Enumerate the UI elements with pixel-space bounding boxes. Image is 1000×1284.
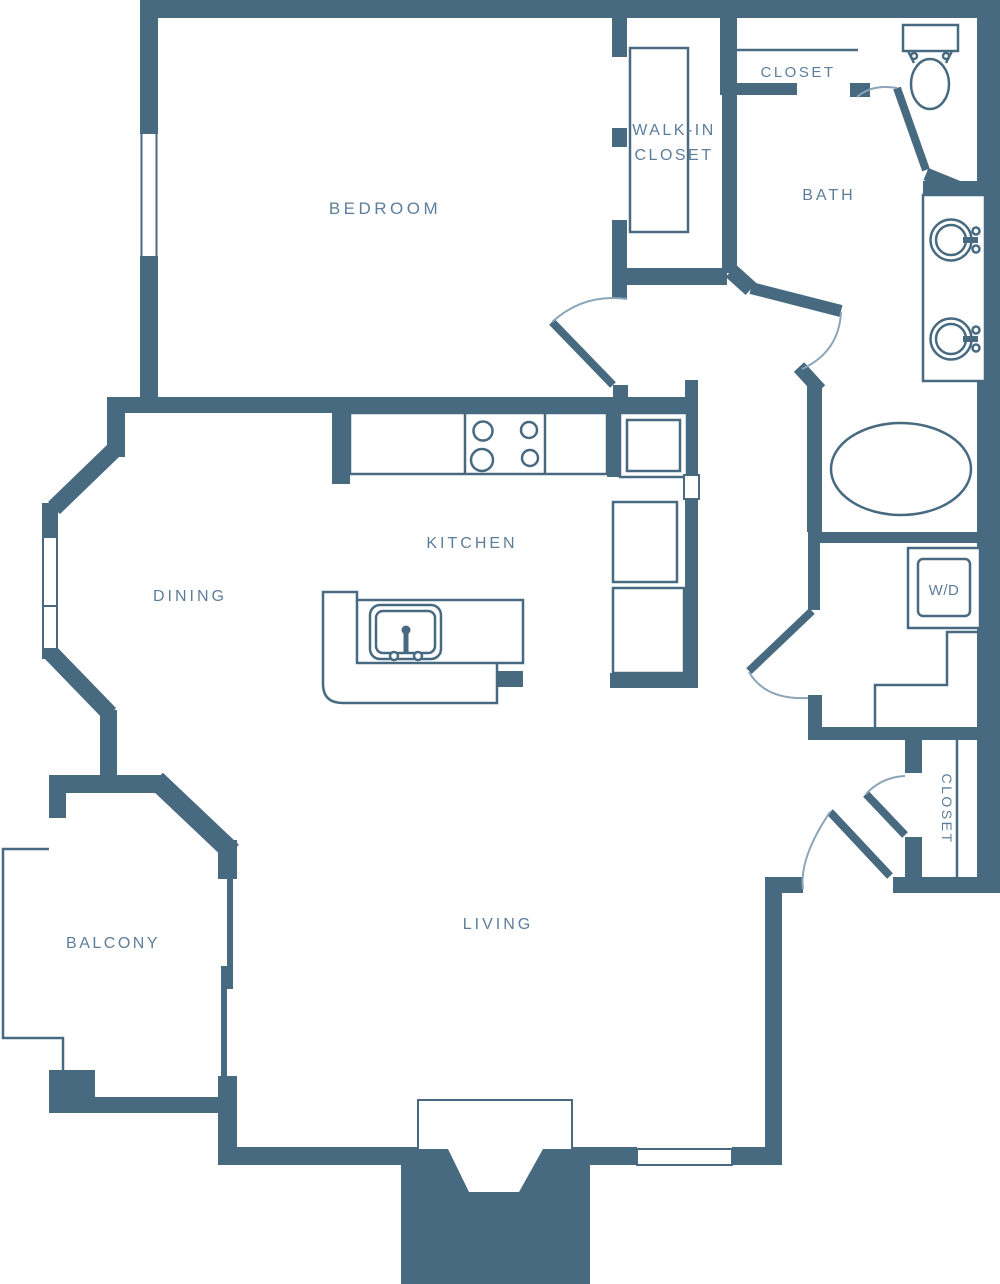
floor-plan: BEDROOM WALK-IN CLOSET CLOSET BATH KITCH… <box>0 0 1000 1284</box>
bedroom-south-wall <box>107 397 698 413</box>
bedroom-window <box>142 133 157 257</box>
wic-west-wall-a <box>612 18 627 57</box>
kitchen-bottom-wall <box>610 673 698 688</box>
toilet-bowl-icon <box>911 59 949 109</box>
entry-niche <box>418 1100 572 1150</box>
tubroom-west-wall <box>807 383 822 532</box>
wic-shelf <box>630 48 688 232</box>
kitchen-island-end-block <box>497 671 523 687</box>
living-top-wall-right <box>893 877 1000 893</box>
sliding-door-panel-1 <box>227 877 233 989</box>
hall-closet-door-leaf <box>866 794 905 835</box>
balcony-bottom-wall <box>95 1097 218 1113</box>
bath-fixtures <box>831 25 985 515</box>
floor-plan-svg: BEDROOM WALK-IN CLOSET CLOSET BATH KITCH… <box>0 0 1000 1284</box>
laundry-door-stub <box>808 695 822 731</box>
living-east-wall <box>765 877 782 1165</box>
walk-in-closet-label-line1: WALK-IN <box>632 122 716 139</box>
balcony-label: BALCONY <box>66 935 160 952</box>
walk-in-closet-label-line2: CLOSET <box>634 147 713 164</box>
hall-closet-stub-top <box>905 737 922 773</box>
dining-bay-wall-4 <box>100 710 117 777</box>
top-closet-label: CLOSET <box>760 64 835 81</box>
bath-label: BATH <box>802 187 855 204</box>
bedroom-door-arc <box>552 298 627 322</box>
dining-window <box>43 537 57 649</box>
living-door-arc <box>803 812 830 889</box>
kitchen-east-wall-notch <box>684 475 699 499</box>
hall-closet-label: CLOSET <box>939 773 955 844</box>
toilet-hinge-left-icon <box>911 53 917 59</box>
balcony-corner-post <box>49 775 66 818</box>
bedroom-door-leaf <box>552 322 613 385</box>
wic-west-wall-c <box>612 220 627 298</box>
kitchen-cabinet-2 <box>613 588 684 673</box>
interior-walls <box>42 0 1000 1165</box>
kitchen-west-stub <box>332 413 350 484</box>
living-ne-corner <box>765 877 803 893</box>
entry <box>401 1100 590 1284</box>
balcony-bottom-post <box>49 1070 95 1113</box>
balcony-door-jamb-bottom <box>218 1076 237 1165</box>
island-faucet-knob-b-icon <box>414 652 422 660</box>
right-wall <box>977 0 1000 893</box>
sink-2-handle-b-icon <box>973 345 980 352</box>
refrigerator-outer-icon <box>620 413 687 477</box>
living-label: LIVING <box>463 916 533 933</box>
sink-1-handle-b-icon <box>973 246 980 253</box>
hall-closet-door-arc <box>866 776 905 794</box>
toilet-tank-icon <box>903 25 958 51</box>
sliding-door-panel-2 <box>221 966 227 1080</box>
laundry-west-wall <box>808 532 820 610</box>
laundry-steps <box>875 632 977 727</box>
kitchen-cabinet-1 <box>613 502 677 582</box>
laundry-bottom-wall <box>808 727 1000 740</box>
bath-west-wall <box>722 18 737 273</box>
living-south-window <box>637 1149 732 1165</box>
balcony-railing <box>3 849 63 1071</box>
toilet-hinge-right-icon <box>943 53 949 59</box>
hall-closet-stub-bottom <box>905 837 922 877</box>
sink-2-handle-a-icon <box>973 327 980 334</box>
bathtub-icon <box>831 423 971 515</box>
bath-door-arc <box>802 312 841 369</box>
balcony-features <box>3 849 233 1080</box>
balcony-door-jamb-top <box>218 840 237 879</box>
top-wall <box>140 0 1000 18</box>
hall-angled-stub <box>731 271 751 289</box>
living-south-wall-1 <box>237 1147 418 1165</box>
laundry-door-leaf <box>749 611 812 671</box>
kitchen-fixtures <box>323 413 699 703</box>
island-faucet-knob-a-icon <box>390 652 398 660</box>
wic-west-wall-b <box>612 128 627 147</box>
dining-label: DINING <box>153 588 227 605</box>
bedroom-door-jamb <box>613 385 628 399</box>
washer-dryer-label: W/D <box>929 582 960 599</box>
bedroom-label: BEDROOM <box>329 199 441 218</box>
bath-angled-wall <box>751 288 841 311</box>
laundry-fixtures <box>875 548 980 727</box>
kitchen-counter-divider-wall <box>607 413 620 477</box>
bedroom-west-wall-lower <box>140 256 158 397</box>
bedroom-west-wall-upper <box>140 0 158 134</box>
wic-south-wall <box>615 268 727 285</box>
kitchen-island <box>323 592 523 703</box>
vanity-bottom-wall <box>818 532 1000 543</box>
laundry-door-arc <box>749 672 808 698</box>
sink-1-handle-a-icon <box>973 228 980 235</box>
dining-bay-wall-2 <box>42 503 58 537</box>
living-door-leaf <box>830 812 890 876</box>
kitchen-label: KITCHEN <box>426 535 517 552</box>
